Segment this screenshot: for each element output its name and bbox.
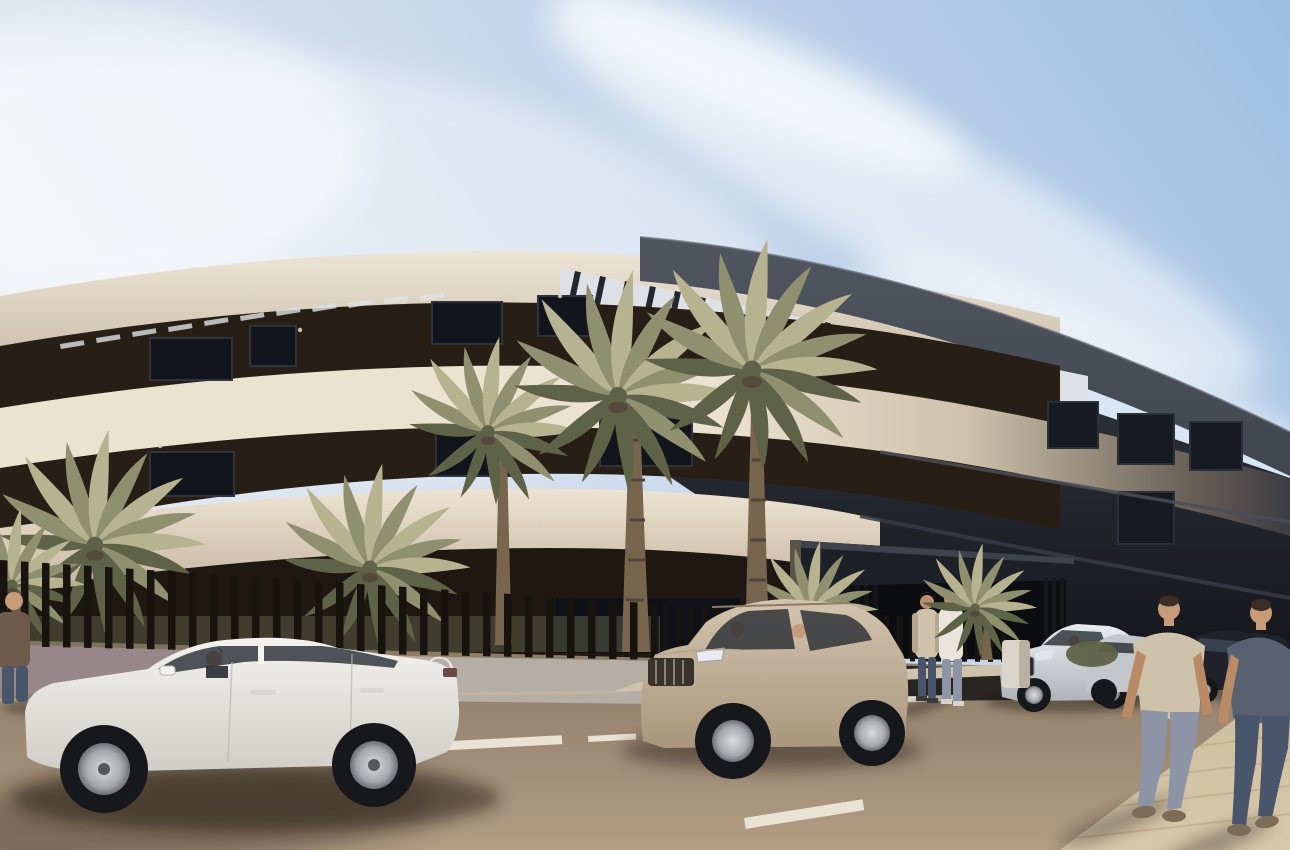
taillight (443, 668, 457, 677)
architectural-render: TO (0, 0, 1290, 850)
suv-passenger (792, 624, 806, 638)
door-handle (250, 690, 276, 695)
window (1118, 414, 1174, 464)
side-mirror (160, 666, 175, 675)
door-handle (360, 688, 384, 693)
shrub (1066, 641, 1118, 667)
planter-shade (1019, 640, 1030, 688)
window (1190, 422, 1242, 470)
window (250, 326, 296, 366)
render-scene: TO (0, 0, 1290, 850)
window (150, 338, 232, 380)
b-pillar (258, 646, 264, 664)
window (432, 302, 502, 344)
suv-grille (648, 658, 694, 686)
window (1048, 402, 1098, 448)
